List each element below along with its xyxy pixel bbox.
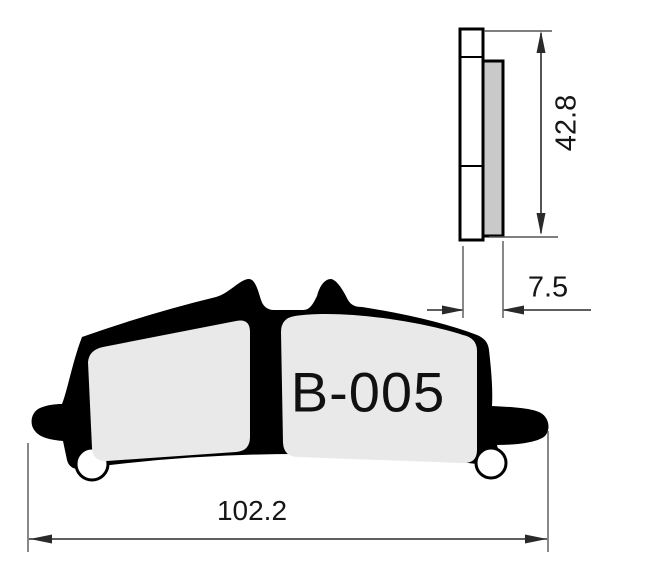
side-view-friction-material bbox=[483, 61, 503, 236]
arrow-down-icon bbox=[537, 213, 546, 235]
dimension-thickness-value: 7.5 bbox=[528, 272, 568, 305]
side-view bbox=[460, 29, 503, 240]
arrow-up-icon bbox=[537, 31, 546, 53]
arrow-left-icon bbox=[502, 306, 524, 315]
dimension-width-value: 102.2 bbox=[217, 495, 287, 527]
side-view-backing-plate bbox=[460, 29, 483, 240]
brake-pad-technical-drawing: B-005 42.8 7.5 102.2 bbox=[0, 0, 647, 568]
right-corner-notch bbox=[476, 448, 506, 478]
arrow-left-icon bbox=[30, 535, 52, 544]
arrow-right-icon bbox=[525, 535, 547, 544]
arrow-right-icon bbox=[442, 306, 464, 315]
dimension-height-value: 42.8 bbox=[551, 95, 584, 151]
part-number-label: B-005 bbox=[291, 360, 445, 425]
